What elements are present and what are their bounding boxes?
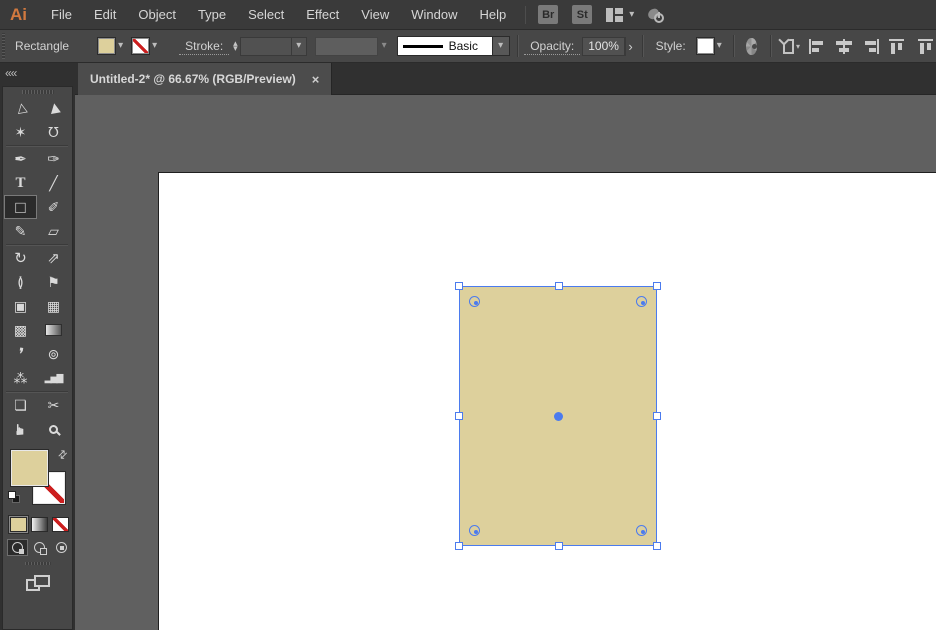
swap-fill-stroke-icon[interactable]: ⇄ xyxy=(55,447,71,463)
curvature-tool-icon: ✑ xyxy=(47,152,60,167)
none-button[interactable] xyxy=(52,517,69,532)
symbol-sprayer-tool-icon: ⁂ xyxy=(14,371,28,385)
controlbar-separator xyxy=(517,35,518,57)
live-corner-widget[interactable] xyxy=(469,296,480,307)
brush-definition-field[interactable] xyxy=(315,37,378,56)
zoom-tool[interactable] xyxy=(37,417,70,441)
selection-tool[interactable]: ▷ xyxy=(4,96,37,120)
perspective-grid-tool[interactable]: ▦ xyxy=(37,294,70,318)
fill-swatch[interactable] xyxy=(97,37,116,55)
pen-tool[interactable]: ✒ xyxy=(4,147,37,171)
curvature-tool[interactable]: ✑ xyxy=(37,147,70,171)
document-tab[interactable]: Untitled-2* @ 66.67% (RGB/Preview) × xyxy=(78,63,332,95)
lasso-tool-icon: ℧ xyxy=(48,125,59,139)
menu-help[interactable]: Help xyxy=(468,0,517,29)
document-tab-title: Untitled-2* @ 66.67% (RGB/Preview) xyxy=(90,72,296,86)
blend-tool-icon: ⊚ xyxy=(48,347,60,361)
tool-group-divider xyxy=(6,391,68,392)
hand-tool[interactable]: ☛ xyxy=(4,417,37,441)
direct-selection-tool-icon: ▶ xyxy=(46,102,61,114)
selection-handle[interactable] xyxy=(555,542,563,550)
width-tool-icon: ≬ xyxy=(17,275,24,289)
rotate-tool[interactable]: ↻ xyxy=(4,246,37,270)
stock-button[interactable]: St xyxy=(572,5,592,24)
object-center-point[interactable] xyxy=(554,412,563,421)
document-tab-bar: Untitled-2* @ 66.67% (RGB/Preview) × xyxy=(75,63,936,95)
perspective-grid-tool-icon: ▦ xyxy=(47,299,60,313)
stroke-swatch-none[interactable] xyxy=(131,37,150,55)
controlbar-separator xyxy=(770,35,771,57)
mesh-tool-icon: ▩ xyxy=(14,323,27,337)
puppet-warp-tool[interactable]: ⚑ xyxy=(37,270,70,294)
slice-tool[interactable]: ✂ xyxy=(37,393,70,417)
style-swatch[interactable] xyxy=(696,37,715,55)
rectangle-tool-icon: □ xyxy=(15,199,25,216)
fill-color-picker[interactable]: ▾ xyxy=(97,37,123,55)
draw-behind-button[interactable] xyxy=(29,539,50,556)
chevron-down-icon[interactable]: ▾ xyxy=(796,42,800,51)
chevron-down-icon[interactable]: ▾ xyxy=(118,41,123,51)
hand-tool-icon: ☛ xyxy=(13,422,28,435)
panel-grip[interactable] xyxy=(22,90,54,94)
symbol-sprayer-tool[interactable]: ⁂ xyxy=(4,366,37,390)
horizontal-align-left-icon[interactable] xyxy=(808,39,826,54)
stroke-weight-stepper[interactable]: ▴ ▾ xyxy=(233,41,238,51)
blend-tool[interactable]: ⊚ xyxy=(37,342,70,366)
width-tool[interactable]: ≬ xyxy=(4,270,37,294)
draw-inside-button[interactable] xyxy=(51,539,72,556)
graphic-style-picker[interactable]: ▾ xyxy=(696,37,722,55)
workspace-switcher[interactable]: ▾ xyxy=(606,8,634,22)
chevron-down-icon[interactable]: ▾ xyxy=(382,41,387,51)
vertical-align-center-icon[interactable] xyxy=(918,39,936,54)
menu-window[interactable]: Window xyxy=(400,0,468,29)
shape-builder-tool-icon: ▣ xyxy=(14,299,27,313)
paintbrush-tool[interactable]: ✐ xyxy=(37,195,70,219)
draw-inside-icon xyxy=(56,542,67,553)
stroke-style-text: Basic xyxy=(449,39,478,53)
draw-behind-icon xyxy=(34,542,45,553)
align-group xyxy=(808,39,936,54)
menu-edit[interactable]: Edit xyxy=(83,0,127,29)
menu-select[interactable]: Select xyxy=(237,0,295,29)
live-corner-widget[interactable] xyxy=(636,525,647,536)
eraser-tool-icon: ▱ xyxy=(48,224,59,238)
column-graph-tool-icon: ▂▅▇ xyxy=(45,374,63,383)
opacity-label[interactable]: Opacity: xyxy=(524,39,580,55)
selection-handle[interactable] xyxy=(653,282,661,290)
menu-view[interactable]: View xyxy=(350,0,400,29)
line-segment-tool[interactable]: ╱ xyxy=(37,171,70,195)
fill-stroke-proxy: ⇄ xyxy=(7,447,68,509)
eraser-tool[interactable]: ▱ xyxy=(37,219,70,243)
selection-tool-icon: ▷ xyxy=(13,102,28,114)
live-corner-widget[interactable] xyxy=(636,296,647,307)
collapse-panel-icon[interactable]: «« xyxy=(5,66,16,80)
draw-normal-button[interactable] xyxy=(7,539,28,556)
color-button[interactable] xyxy=(10,517,27,532)
shaper-tool[interactable]: ✎ xyxy=(4,219,37,243)
stroke-weight-select[interactable]: ▾ xyxy=(240,37,307,56)
tools-rail: «« ▷▶✶℧✒✑T╱□✐✎▱↻⇗≬⚑▣▦▩❜⊚⁂▂▅▇❏✂☛ ⇄ xyxy=(0,63,75,630)
selection-handle[interactable] xyxy=(455,412,463,420)
drawing-modes-row xyxy=(7,539,72,556)
default-fill-stroke-icon[interactable] xyxy=(8,491,20,503)
direct-selection-tool[interactable]: ▶ xyxy=(37,96,70,120)
shaper-tool-icon: ✎ xyxy=(15,224,27,238)
chevron-down-icon[interactable]: ▾ xyxy=(717,41,722,51)
opacity-slider-arrow[interactable]: › xyxy=(625,37,635,56)
tool-grid: ▷▶✶℧✒✑T╱□✐✎▱↻⇗≬⚑▣▦▩❜⊚⁂▂▅▇❏✂☛ xyxy=(3,96,72,441)
selection-handle[interactable] xyxy=(653,412,661,420)
change-screen-mode-icon[interactable] xyxy=(26,575,50,592)
recolor-artwork-icon[interactable] xyxy=(746,38,756,55)
stroke-preview-line xyxy=(403,45,443,48)
menu-file[interactable]: File xyxy=(40,0,83,29)
illustrator-logo-icon: Ai xyxy=(0,5,40,25)
rotate-tool-icon: ↻ xyxy=(14,251,27,266)
paintbrush-tool-icon: ✐ xyxy=(48,200,60,214)
eyedropper-tool-icon: ❜ xyxy=(16,345,24,363)
stroke-style-select[interactable]: Basic ▾ xyxy=(397,36,510,56)
eyedropper-tool[interactable]: ❜ xyxy=(4,342,37,366)
selection-handle[interactable] xyxy=(455,542,463,550)
stroke-color-picker[interactable]: ▾ xyxy=(131,37,157,55)
selection-handle[interactable] xyxy=(455,282,463,290)
tool-group-divider xyxy=(6,145,68,146)
stroke-style-value[interactable]: Basic xyxy=(397,36,493,56)
artboard-tool-icon: ❏ xyxy=(14,398,27,412)
gradient-button[interactable] xyxy=(31,517,48,532)
context-label: Rectangle xyxy=(9,39,93,53)
chevron-down-icon[interactable]: ▾ xyxy=(292,37,307,56)
gradient-tool[interactable] xyxy=(37,318,70,342)
live-corner-widget[interactable] xyxy=(469,525,480,536)
artboard-tool[interactable]: ❏ xyxy=(4,393,37,417)
controlbar-grip[interactable] xyxy=(2,33,5,59)
controlbar-separator xyxy=(733,35,734,57)
menu-type[interactable]: Type xyxy=(187,0,237,29)
chevron-down-icon: ▾ xyxy=(629,10,634,20)
zoom-tool-icon xyxy=(49,425,58,434)
canvas[interactable] xyxy=(75,95,936,630)
stroke-weight-value[interactable] xyxy=(240,37,292,56)
paint-mode-row xyxy=(10,517,72,532)
magic-wand-tool[interactable]: ✶ xyxy=(4,120,37,144)
tool-group-divider xyxy=(6,244,68,245)
controlbar-separator xyxy=(642,35,643,57)
selection-handle[interactable] xyxy=(653,542,661,550)
opacity-input[interactable]: 100% xyxy=(582,37,625,56)
chevron-down-icon[interactable]: ▾ xyxy=(493,36,510,56)
gpu-performance-icon[interactable] xyxy=(648,7,664,23)
workspace-layout-icon xyxy=(606,8,623,22)
puppet-warp-tool-icon: ⚑ xyxy=(47,275,60,289)
pen-tool-icon: ✒ xyxy=(14,152,27,167)
draw-normal-icon xyxy=(12,542,23,553)
menubar-right-group: Br St ▾ xyxy=(538,5,664,24)
selected-rectangle[interactable] xyxy=(459,286,657,546)
scale-tool[interactable]: ⇗ xyxy=(37,246,70,270)
chevron-down-icon[interactable]: ▾ xyxy=(152,41,157,51)
column-graph-tool[interactable]: ▂▅▇ xyxy=(37,366,70,390)
gradient-tool-icon xyxy=(45,324,62,336)
tools-panel: ▷▶✶℧✒✑T╱□✐✎▱↻⇗≬⚑▣▦▩❜⊚⁂▂▅▇❏✂☛ ⇄ xyxy=(2,86,73,630)
horizontal-align-right-icon[interactable] xyxy=(862,39,880,54)
shape-builder-tool[interactable]: ▣ xyxy=(4,294,37,318)
illustrator-window: Ai FileEditObjectTypeSelectEffectViewWin… xyxy=(0,0,936,630)
lasso-tool[interactable]: ℧ xyxy=(37,120,70,144)
horizontal-align-center-icon[interactable] xyxy=(835,39,853,54)
vertical-align-top-icon[interactable] xyxy=(889,39,907,54)
menu-object[interactable]: Object xyxy=(127,0,187,29)
close-tab-icon[interactable]: × xyxy=(312,72,320,87)
line-segment-tool-icon: ╱ xyxy=(49,176,57,190)
type-tool[interactable]: T xyxy=(4,171,37,195)
panel-grip xyxy=(25,562,51,565)
menubar-separator xyxy=(525,6,526,24)
style-label: Style: xyxy=(650,39,692,53)
magic-wand-tool-icon: ✶ xyxy=(15,125,27,139)
fill-proxy-swatch[interactable] xyxy=(10,449,49,487)
stepper-down-icon[interactable]: ▾ xyxy=(233,46,238,51)
mesh-tool[interactable]: ▩ xyxy=(4,318,37,342)
menu-items: FileEditObjectTypeSelectEffectViewWindow… xyxy=(40,0,517,29)
stroke-weight-label[interactable]: Stroke: xyxy=(179,39,229,55)
control-bar: Rectangle ▾ ▾ Stroke: ▴ ▾ ▾ ▾ Basic ▾ Op xyxy=(0,30,936,63)
selection-handle[interactable] xyxy=(555,282,563,290)
bridge-button[interactable]: Br xyxy=(538,5,558,24)
type-tool-icon: T xyxy=(15,176,25,191)
menu-effect[interactable]: Effect xyxy=(295,0,350,29)
rectangle-tool[interactable]: □ xyxy=(4,195,37,219)
scale-tool-icon: ⇗ xyxy=(47,251,60,266)
shape-properties-icon[interactable] xyxy=(783,39,794,54)
menu-bar: Ai FileEditObjectTypeSelectEffectViewWin… xyxy=(0,0,936,30)
slice-tool-icon: ✂ xyxy=(48,398,60,412)
